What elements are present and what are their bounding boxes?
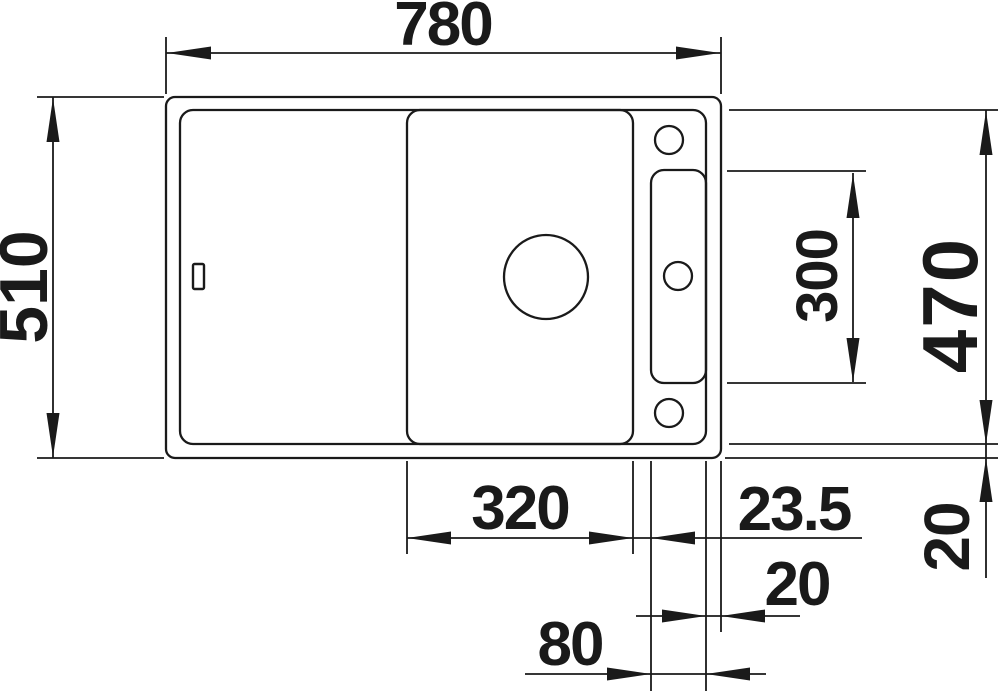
arrow-20-bottom-right (721, 610, 765, 623)
arrow-470-top (980, 111, 993, 155)
board-grip-slot (193, 264, 204, 289)
arrow-300-top (847, 174, 860, 218)
arrow-320-left (407, 532, 451, 545)
sink-outline-group (166, 97, 721, 458)
accessory-tray (651, 170, 706, 383)
arrow-510-top (47, 98, 60, 142)
dim-label-rim-right-width: 20 (765, 554, 830, 616)
arrow-780-left (167, 47, 211, 60)
drain-circle (504, 235, 588, 319)
arrow-780-right (676, 47, 720, 60)
dim-label-bowl-width: 320 (471, 478, 568, 540)
dim-label-overall-width: 780 (394, 0, 491, 56)
dim-label-overall-depth: 510 (0, 230, 58, 343)
dim-label-rim-bottom-width: 20 (915, 502, 979, 571)
dim-label-inner-depth: 470 (911, 237, 989, 373)
tap-hole-top (655, 126, 683, 154)
arrow-80-left (607, 668, 651, 681)
dim-label-tray-width: 80 (538, 614, 603, 676)
sink-inner-edge (180, 110, 706, 444)
sink-bowl (407, 110, 633, 444)
arrow-80-right (706, 668, 750, 681)
dim-label-bowl-to-tray-gap: 23.5 (738, 479, 851, 541)
arrow-20-bottom-left (662, 610, 706, 623)
sink-technical-drawing: 780 510 470 300 320 23.5 20 20 80 (0, 0, 1000, 692)
arrow-510-bottom (47, 413, 60, 457)
sink-outer-rim (166, 97, 721, 458)
arrow-20-right (980, 458, 993, 502)
arrow-320-right (589, 532, 633, 545)
tap-hole-middle (664, 262, 692, 290)
arrow-300-bottom (847, 338, 860, 382)
arrow-470-bottom (980, 400, 993, 444)
arrow-23.5-right (651, 532, 695, 545)
drawing-canvas (0, 0, 1000, 692)
tap-hole-bottom (655, 399, 683, 427)
dim-label-tray-length: 300 (789, 229, 847, 323)
arrowheads-group (47, 47, 993, 681)
